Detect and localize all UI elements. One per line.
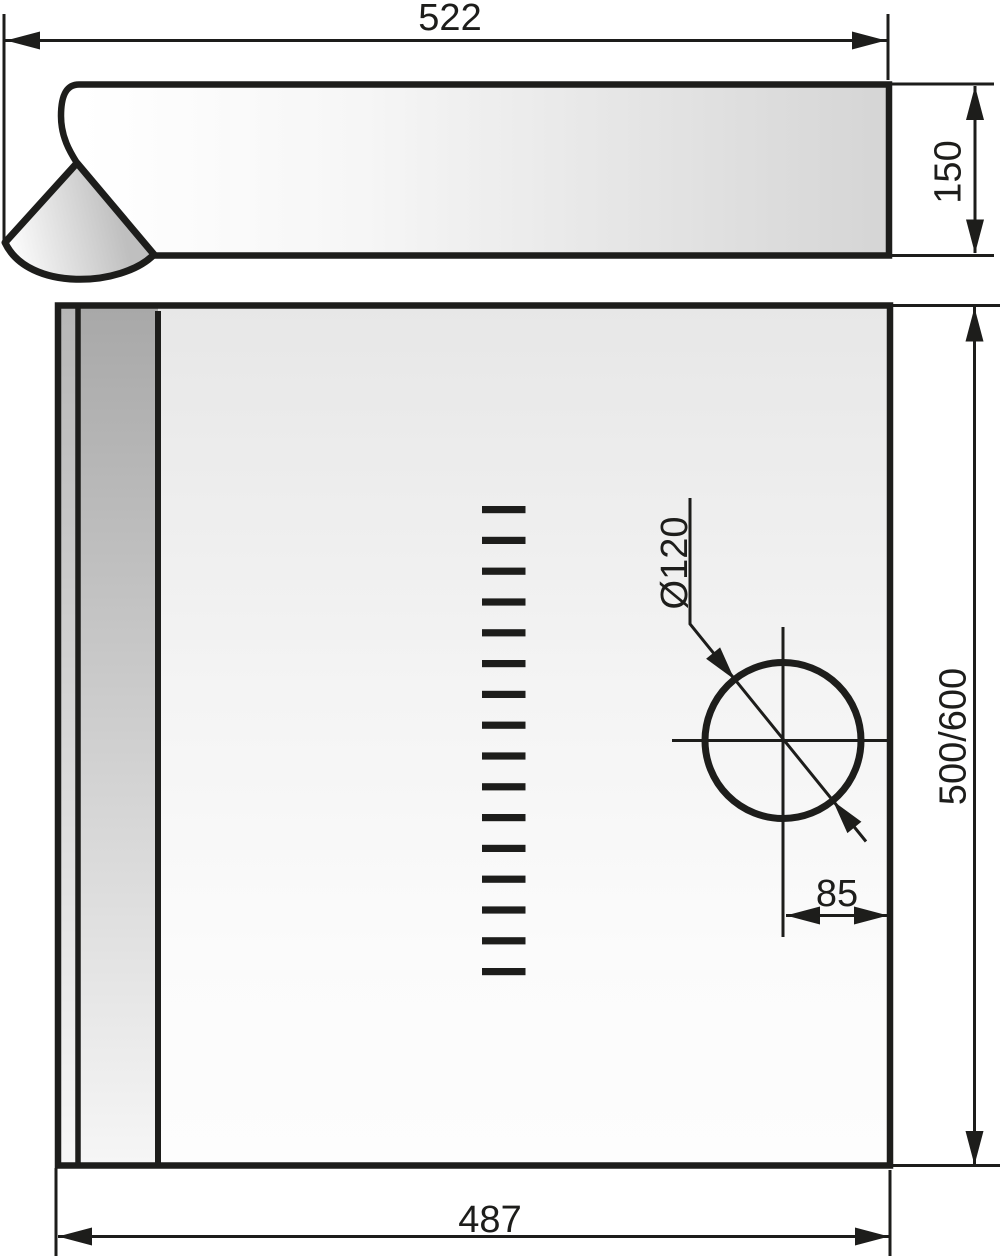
svg-text:522: 522 bbox=[418, 0, 481, 39]
svg-text:85: 85 bbox=[816, 873, 858, 915]
svg-text:487: 487 bbox=[458, 1199, 521, 1241]
svg-text:500/600: 500/600 bbox=[933, 668, 975, 805]
svg-text:150: 150 bbox=[928, 140, 970, 203]
svg-text:Ø120: Ø120 bbox=[654, 517, 696, 610]
